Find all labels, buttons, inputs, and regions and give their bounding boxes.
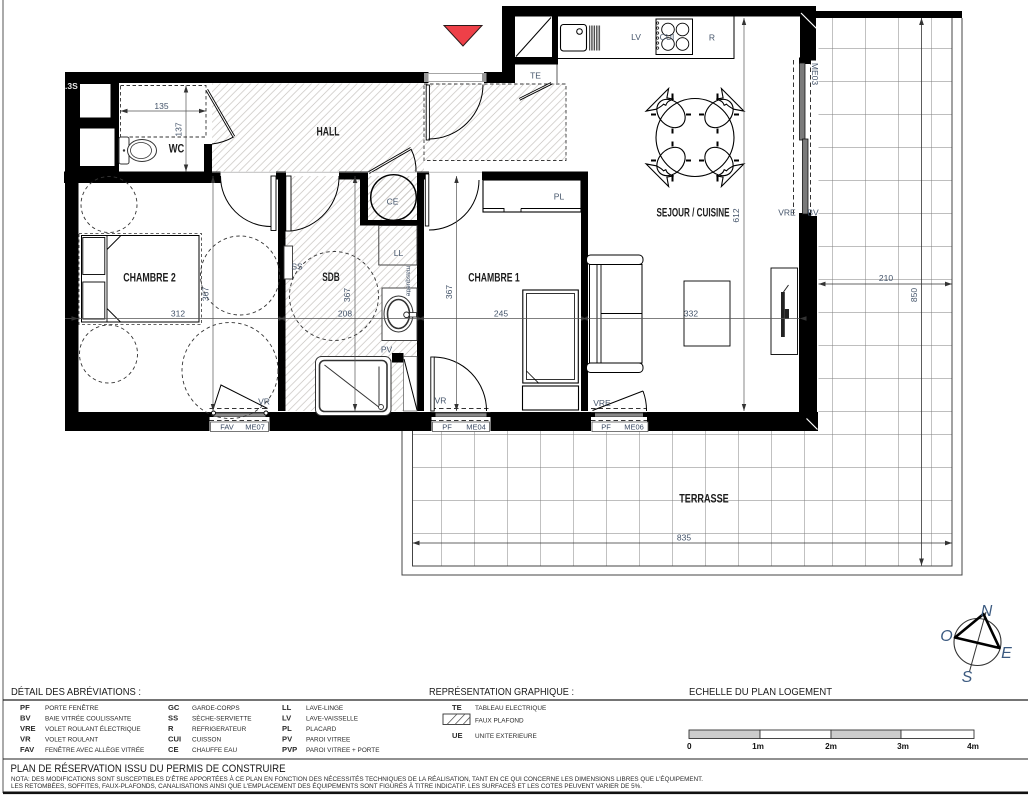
svg-text:PF: PF — [601, 423, 611, 432]
svg-text:CUISSON: CUISSON — [192, 737, 222, 744]
svg-text:208: 208 — [338, 309, 352, 319]
svg-text:N: N — [981, 603, 993, 620]
svg-text:4m: 4m — [967, 742, 979, 751]
svg-text:LL: LL — [394, 248, 404, 258]
svg-text:TERRASSE: TERRASSE — [679, 494, 729, 506]
svg-text:FENÊTRE AVEC ALLÈGE VITRÉE: FENÊTRE AVEC ALLÈGE VITRÉE — [45, 745, 144, 754]
svg-text:VRE: VRE — [20, 724, 36, 733]
svg-text:ME04: ME04 — [466, 423, 486, 432]
svg-text:TABLEAU ELECTRIQUE: TABLEAU ELECTRIQUE — [475, 705, 546, 712]
svg-text:VRE: VRE — [593, 398, 611, 408]
svg-text:LV: LV — [282, 714, 292, 723]
svg-text:PLACARD: PLACARD — [306, 726, 337, 733]
svg-text:3m: 3m — [897, 742, 909, 751]
svg-text:SS: SS — [168, 714, 178, 723]
svg-text:PVP: PVP — [282, 745, 297, 754]
svg-text:VR: VR — [258, 397, 270, 407]
svg-text:SS: SS — [291, 262, 303, 272]
svg-text:PL: PL — [282, 724, 292, 733]
svg-text:367: 367 — [444, 285, 454, 299]
svg-text:332: 332 — [684, 309, 698, 319]
svg-text:CHAMBRE 1: CHAMBRE 1 — [468, 273, 520, 285]
svg-text:GC: GC — [168, 703, 180, 712]
svg-text:FAV: FAV — [20, 745, 35, 754]
svg-text:masquette: masquette — [405, 266, 412, 297]
svg-text:2m: 2m — [825, 742, 837, 751]
svg-text:R: R — [168, 724, 174, 733]
svg-text:PV: PV — [282, 735, 293, 744]
svg-text:REPRÉSENTATION GRAPHIQUE :: REPRÉSENTATION GRAPHIQUE : — [429, 687, 574, 698]
svg-text:.3S: .3S — [65, 81, 78, 91]
svg-text:367: 367 — [201, 287, 211, 301]
svg-text:BV: BV — [807, 208, 819, 218]
svg-text:245: 245 — [494, 309, 508, 319]
svg-text:NOTA: DES MODIFICATIONS SONT S: NOTA: DES MODIFICATIONS SONT SUSCEPTIBLE… — [11, 774, 703, 783]
svg-text:REFRIGERATEUR: REFRIGERATEUR — [192, 726, 247, 733]
svg-text:PAROI VITREE: PAROI VITREE — [306, 737, 350, 744]
svg-text:VOLET ROULANT ÉLECTRIQUE: VOLET ROULANT ÉLECTRIQUE — [45, 724, 141, 733]
svg-text:TE: TE — [530, 71, 541, 81]
svg-text:E: E — [1001, 645, 1012, 662]
svg-text:SÈCHE-SERVIETTE: SÈCHE-SERVIETTE — [192, 714, 252, 723]
svg-text:GARDE-CORPS: GARDE-CORPS — [192, 705, 240, 712]
svg-text:137: 137 — [174, 122, 184, 136]
svg-text:367: 367 — [342, 288, 352, 302]
svg-text:BAIE VITRÉE COULISSANTE: BAIE VITRÉE COULISSANTE — [45, 714, 131, 723]
svg-text:SDB: SDB — [322, 272, 340, 284]
svg-text:ME07: ME07 — [245, 423, 265, 432]
svg-text:ECHELLE DU PLAN LOGEMENT: ECHELLE DU PLAN LOGEMENT — [689, 687, 832, 698]
svg-text:PLAN DE RÉSERVATION ISSU DU PE: PLAN DE RÉSERVATION ISSU DU PERMIS DE CO… — [11, 762, 286, 775]
svg-text:135: 135 — [154, 101, 168, 111]
svg-text:PF: PF — [20, 703, 30, 712]
svg-text:WC: WC — [169, 144, 185, 156]
svg-text:CE: CE — [387, 197, 399, 207]
svg-text:VRE: VRE — [778, 208, 796, 218]
svg-text:VR: VR — [435, 396, 447, 406]
svg-text:FAV: FAV — [220, 423, 234, 432]
svg-text:LES RETOMBÉES, SOFFITES, FAUX-: LES RETOMBÉES, SOFFITES, FAUX-PLAFONDS, … — [11, 781, 642, 790]
svg-text:0: 0 — [687, 742, 692, 751]
svg-text:HALL: HALL — [317, 127, 340, 139]
svg-text:ME03: ME03 — [810, 63, 820, 85]
svg-text:TE: TE — [452, 703, 462, 712]
svg-text:CHAUFFE EAU: CHAUFFE EAU — [192, 747, 237, 754]
svg-text:VOLET ROULANT: VOLET ROULANT — [45, 737, 98, 744]
svg-text:DÉTAIL DES ABRÉVIATIONS :: DÉTAIL DES ABRÉVIATIONS : — [11, 687, 141, 698]
svg-text:R: R — [709, 33, 715, 43]
svg-text:LAVE-LINGE: LAVE-LINGE — [306, 705, 343, 712]
svg-text:VR: VR — [20, 735, 31, 744]
svg-text:O: O — [940, 628, 952, 645]
svg-text:FAUX PLAFOND: FAUX PLAFOND — [475, 718, 524, 725]
svg-text:LAVE-VAISSELLE: LAVE-VAISSELLE — [306, 716, 358, 723]
svg-text:LL: LL — [282, 703, 292, 712]
svg-text:PL: PL — [554, 192, 565, 202]
svg-text:PAROI VITREE + PORTE: PAROI VITREE + PORTE — [306, 747, 379, 754]
svg-text:UNITE EXTERIEURE: UNITE EXTERIEURE — [475, 733, 537, 740]
svg-text:CHAMBRE 2: CHAMBRE 2 — [123, 273, 176, 285]
svg-text:835: 835 — [677, 533, 691, 543]
svg-text:CUI: CUI — [660, 32, 675, 42]
svg-text:CE: CE — [168, 745, 179, 754]
svg-text:PV: PV — [381, 345, 393, 355]
svg-text:612: 612 — [731, 208, 741, 222]
svg-text:LV: LV — [631, 32, 641, 42]
svg-text:PF: PF — [442, 423, 452, 432]
svg-text:SEJOUR / CUISINE: SEJOUR / CUISINE — [657, 208, 730, 220]
svg-text:312: 312 — [171, 309, 185, 319]
svg-text:PORTE FENÊTRE: PORTE FENÊTRE — [45, 703, 99, 712]
svg-text:UE: UE — [452, 731, 463, 740]
svg-text:ME06: ME06 — [624, 423, 644, 432]
svg-text:210: 210 — [879, 273, 893, 283]
svg-text:BV: BV — [20, 714, 31, 723]
svg-text:1m: 1m — [752, 742, 764, 751]
svg-text:850: 850 — [909, 288, 919, 302]
svg-text:S: S — [962, 669, 973, 686]
svg-text:CUI: CUI — [168, 735, 181, 744]
